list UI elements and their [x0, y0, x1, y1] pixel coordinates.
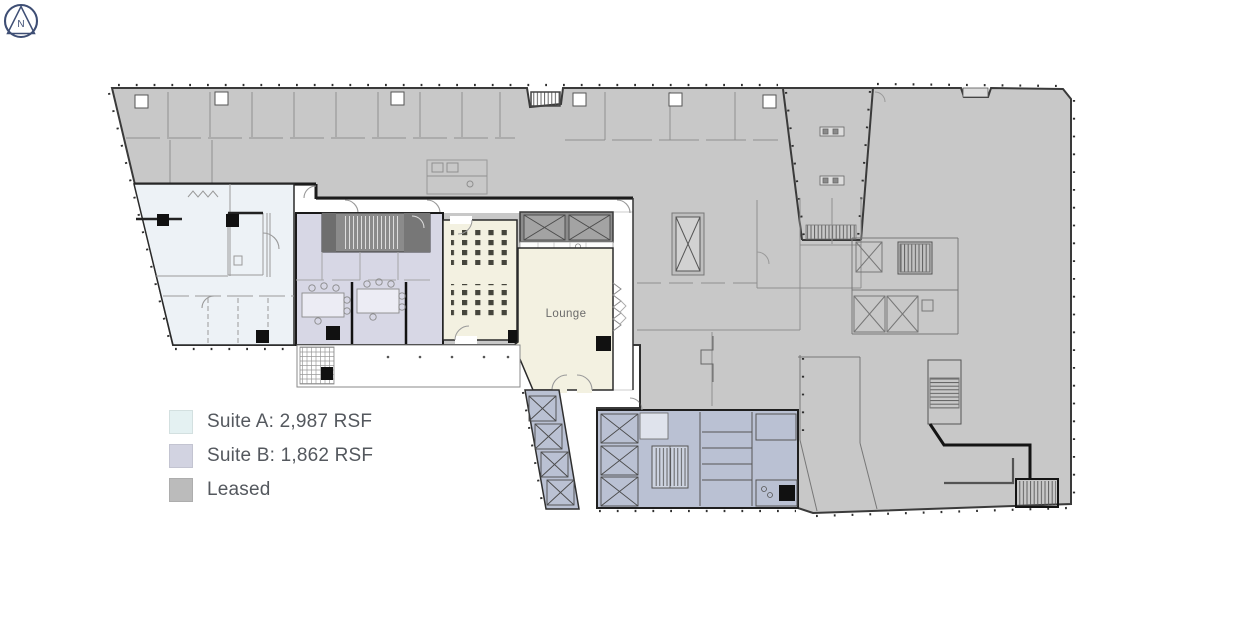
suite-b-swatch	[169, 444, 193, 468]
elevator-bank	[520, 212, 613, 251]
suite-b-label: Suite B: 1,862 RSF	[207, 445, 373, 467]
terrace	[297, 345, 520, 387]
core-stairs	[652, 446, 688, 488]
north-letter: N	[17, 19, 24, 30]
legend-item-leased: Leased	[169, 479, 373, 501]
seating-grid	[451, 284, 510, 320]
floor-plan-page: Lounge Suite A: 2,987 RSF Suite B: 1,862…	[0, 0, 1260, 620]
leased-label: Leased	[207, 479, 271, 501]
suite-b-stairwell	[322, 213, 430, 252]
elevator-strip	[525, 390, 579, 509]
suite-a-area	[134, 184, 294, 345]
column	[326, 326, 340, 340]
legend-item-suite-b: Suite B: 1,862 RSF	[169, 445, 373, 467]
legend: Suite A: 2,987 RSF Suite B: 1,862 RSF Le…	[169, 411, 373, 513]
leased-swatch	[169, 478, 193, 502]
suite-b-area	[296, 213, 443, 345]
lounge-room-label: Lounge	[534, 308, 598, 320]
floor-plan-drawing	[0, 0, 1260, 620]
suite-a-label: Suite A: 2,987 RSF	[207, 411, 372, 433]
entry-notch	[531, 92, 560, 106]
rooftop-notch	[963, 88, 988, 97]
column	[596, 336, 611, 351]
north-compass-icon: N	[0, 0, 42, 44]
building-core	[597, 398, 798, 508]
suite-a-swatch	[169, 410, 193, 434]
legend-item-suite-a: Suite A: 2,987 RSF	[169, 411, 373, 433]
lounge-area	[514, 248, 626, 393]
